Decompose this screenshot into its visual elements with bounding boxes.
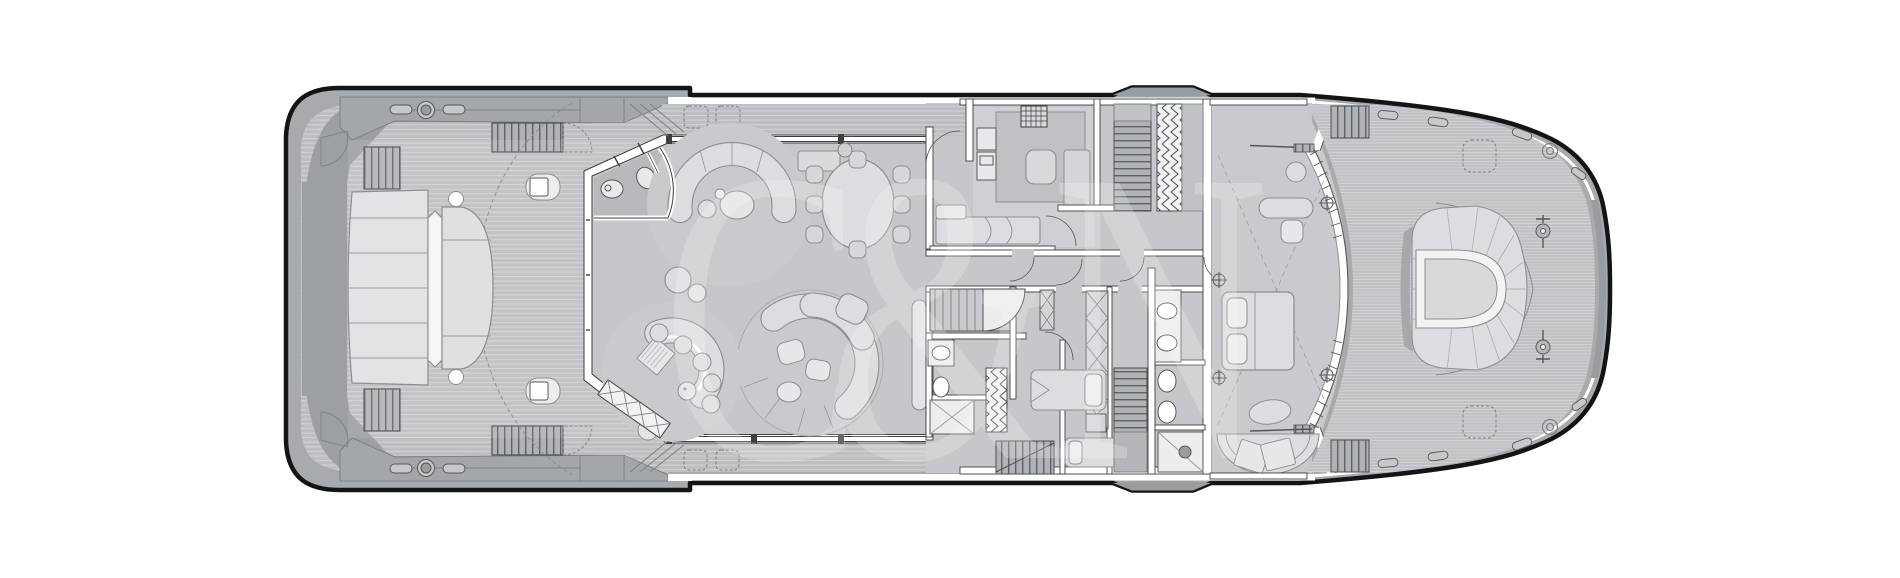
svg-text:&: & bbox=[827, 85, 1062, 550]
svg-text:N: N bbox=[1051, 85, 1269, 550]
